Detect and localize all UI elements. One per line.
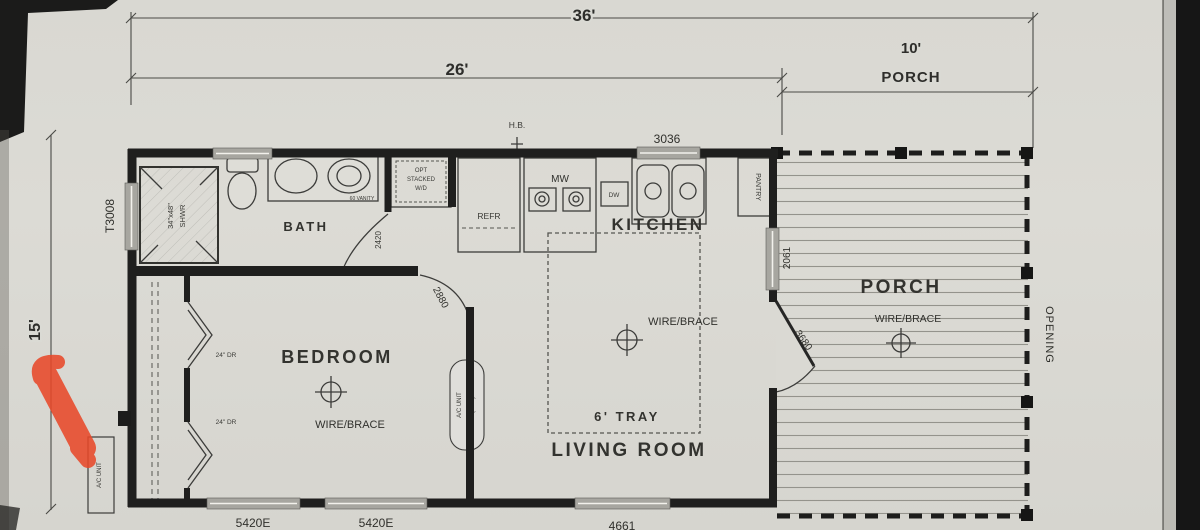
bedroom-label: BEDROOM — [281, 347, 393, 367]
vanity-label: 60 VANITY — [350, 196, 375, 202]
shower: 34"x48" SHWR — [140, 167, 218, 263]
ac-wall-penetration — [118, 411, 131, 426]
window-4661: 4661 — [575, 498, 670, 530]
window-5420e-1-label: 5420E — [236, 516, 271, 530]
bedroom-wire-brace-symbol — [315, 376, 347, 408]
shower-size-label: 34"x48" — [166, 203, 175, 229]
closet-rod — [152, 282, 158, 500]
vanity-double-sink: 60 VANITY — [268, 153, 378, 202]
floor-plan-drawing: 36' 26' 10' PORCH 15' PORCH WIRE/BRACE — [0, 0, 1200, 530]
window-t3008: T3008 — [103, 183, 138, 250]
wd-line3: W/D — [415, 186, 427, 192]
wd-line2: STACKED — [407, 177, 436, 183]
bedroom: BEDROOM WIRE/BRACE 24" DR 24" DR A/C UNI… — [152, 282, 484, 500]
dim-porch-word: PORCH — [881, 69, 940, 86]
closet-door-2: 24" DR — [188, 419, 237, 488]
closet-door-1: 24" DR — [188, 302, 237, 368]
bedroom-wire-brace-label: WIRE/BRACE — [315, 419, 385, 431]
orange-marker-scribble — [39, 362, 88, 460]
living-wire-brace-symbol — [611, 324, 643, 356]
window-2061 — [766, 228, 779, 290]
dim-10: 10' — [901, 40, 921, 57]
shower-word-label: SHWR — [178, 204, 187, 227]
dishwasher-label: DW — [609, 192, 621, 199]
photo-dark-band-right — [1176, 0, 1200, 530]
porch-deck-boards — [777, 158, 1028, 514]
window-5420e-1: 5420E — [207, 498, 300, 530]
kitchen-label: KITCHEN — [611, 215, 704, 234]
window-3036 — [637, 147, 700, 159]
porch-wire-brace-label: WIRE/BRACE — [875, 313, 942, 325]
model-window-label: T3008 — [103, 199, 117, 233]
living-room-label: LIVING ROOM — [551, 440, 706, 461]
photo-dark-corner-bottom-left — [0, 505, 20, 530]
refrigerator-label: REFR — [477, 211, 500, 221]
dim-26: 26' — [446, 60, 469, 79]
microwave-label: MW — [551, 174, 569, 185]
window-5420e-2-label: 5420E — [359, 516, 394, 530]
porch-window-size: 2061 — [782, 246, 793, 269]
living-wire-brace-label: WIRE/BRACE — [648, 316, 718, 328]
porch-room-label: PORCH — [860, 277, 941, 298]
bath-door-size: 2420 — [374, 231, 383, 249]
pantry: PANTRY — [738, 158, 772, 216]
toilet — [227, 158, 258, 209]
wd-line1: OPT — [415, 168, 428, 174]
porch: PORCH WIRE/BRACE OPENING 2061 3680 — [771, 147, 1055, 521]
living-room: WIRE/BRACE 6' TRAY LIVING ROOM — [548, 233, 718, 461]
ac-wall-unit-label: A/C UNIT — [457, 392, 463, 418]
bath-label: BATH — [283, 219, 328, 234]
bedroom-door-size: 2880 — [430, 285, 450, 310]
dim-36: 36' — [573, 6, 596, 25]
washer-dryer-closet: OPT STACKED W/D — [391, 156, 451, 207]
floor-plan-photo: 36' 26' 10' PORCH 15' PORCH WIRE/BRACE — [0, 0, 1200, 530]
window-5420e-2: 5420E — [325, 498, 427, 530]
bath: 34"x48" SHWR 60 VANITY BATH 2420 — [140, 153, 388, 269]
dishwasher: DW — [601, 182, 628, 206]
dim-15: 15' — [27, 319, 44, 341]
porch-opening-label: OPENING — [1043, 306, 1055, 364]
tray-ceiling-outline — [548, 233, 700, 433]
tray-label: 6' TRAY — [594, 409, 660, 424]
window-top-bath — [213, 148, 272, 159]
ac-pad-label: A/C UNIT — [97, 462, 103, 488]
window-4661-label: 4661 — [609, 519, 636, 530]
photo-dark-corner-top-left — [0, 0, 118, 142]
hose-bib-label: H.B. — [509, 120, 526, 130]
hose-bib: H.B. — [509, 120, 526, 151]
refrigerator: REFR — [458, 158, 520, 252]
pantry-label: PANTRY — [754, 173, 761, 201]
closet-door-2-size: 24" DR — [216, 419, 237, 426]
kitchen-window-size: 3036 — [654, 132, 681, 146]
range-microwave: MW — [524, 158, 596, 252]
closet-door-1-size: 24" DR — [216, 352, 237, 359]
